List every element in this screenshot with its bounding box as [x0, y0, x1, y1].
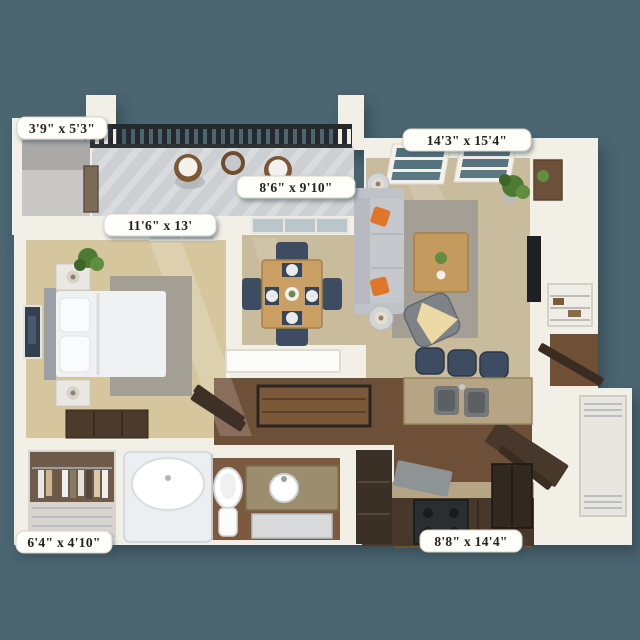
storage-door: [84, 166, 98, 212]
dining-chair-left: [242, 278, 262, 310]
washer-dryer-closet: [356, 450, 392, 544]
faucet: [459, 384, 465, 390]
headboard: [44, 288, 56, 380]
svg-text:14'3" x 15'4": 14'3" x 15'4": [427, 133, 507, 148]
bar-stools: [416, 348, 508, 378]
patio-table: [221, 151, 245, 175]
tv: [527, 236, 541, 302]
svg-text:8'8" x 14'4": 8'8" x 14'4": [434, 534, 507, 549]
label-living-room: 14'3" x 15'4": [403, 129, 531, 151]
dining-chair-bottom: [276, 326, 308, 346]
railing-balusters: [84, 129, 352, 144]
bed: [44, 288, 166, 380]
pantry-niche: [548, 284, 592, 326]
storage-room: [22, 140, 98, 216]
patio: [84, 124, 354, 216]
label-storage-room: 3'9" x 5'3": [17, 117, 107, 139]
pillow: [60, 298, 90, 332]
pillow: [60, 336, 90, 372]
railing-bottom-rail: [84, 144, 352, 148]
upper-niche: [534, 160, 562, 200]
label-patio: 8'6" x 9'10": [237, 176, 355, 198]
walk-in-closet: [28, 450, 116, 538]
bar-counter: [404, 378, 532, 424]
coffee-table: [414, 233, 468, 292]
dining-balcony-door: [252, 218, 348, 233]
floor-plan[interactable]: 3'9" x 5'3" 11'6" x 13' 8'6" x 9'10" 14'…: [0, 0, 640, 640]
nightstand-bottom: [56, 380, 90, 406]
refrigerator: [492, 464, 532, 528]
built-in-desk: [226, 350, 340, 372]
sofa: [354, 188, 404, 314]
vanity-mirror: [252, 514, 332, 538]
railing-top-rail: [84, 124, 352, 129]
dining-chair-right: [322, 278, 342, 310]
label-closet: 6'4" x 4'10": [16, 531, 112, 553]
label-bedroom: 11'6" x 13': [104, 214, 216, 236]
laundry-closet: [580, 396, 626, 516]
dresser: [66, 410, 148, 438]
bathtub: [124, 452, 212, 542]
svg-text:3'9" x 5'3": 3'9" x 5'3": [29, 121, 95, 136]
svg-text:6'4" x 4'10": 6'4" x 4'10": [27, 535, 100, 550]
side-table-bottom: [369, 306, 393, 330]
svg-text:8'6" x 9'10": 8'6" x 9'10": [259, 180, 332, 195]
dining-chair-top: [276, 242, 308, 262]
label-kitchen: 8'8" x 14'4": [420, 530, 522, 552]
svg-text:11'6" x 13': 11'6" x 13': [128, 218, 193, 233]
storage-wall-shadow: [22, 140, 90, 170]
hanging-clothes: [38, 470, 108, 499]
wall-art: [24, 306, 41, 358]
vanity: [246, 466, 338, 538]
